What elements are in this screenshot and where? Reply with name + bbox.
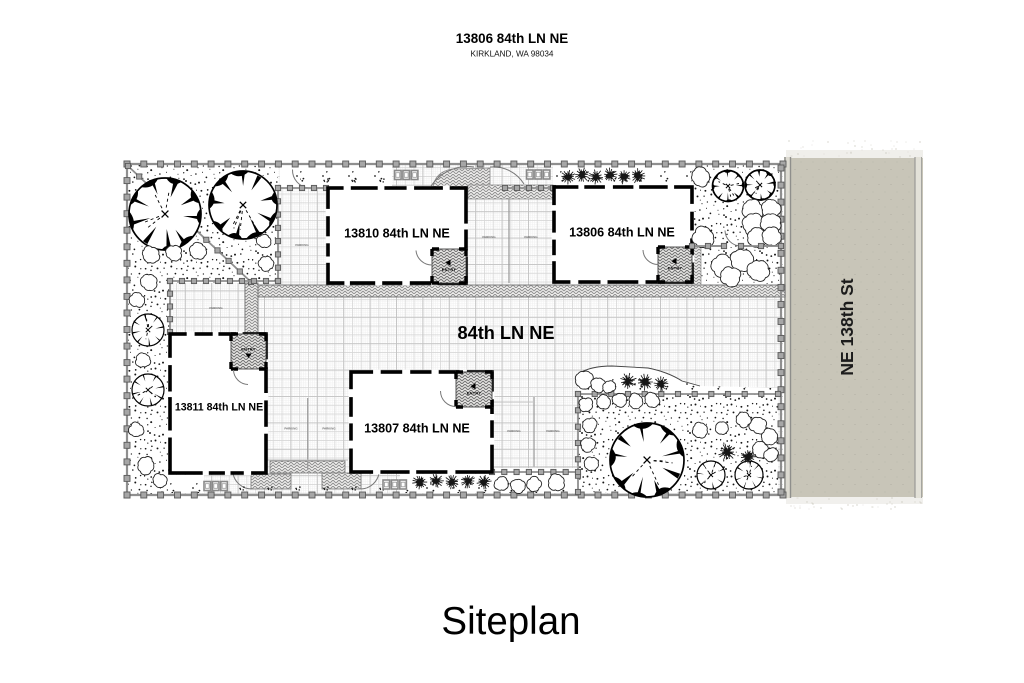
svg-text:PARKING: PARKING xyxy=(284,427,298,431)
svg-text:PARKING: PARKING xyxy=(524,235,538,239)
svg-text:KIRKLAND, WA 98034: KIRKLAND, WA 98034 xyxy=(471,50,554,59)
svg-text:PARKING: PARKING xyxy=(507,429,521,433)
svg-text:13806 84th LN NE: 13806 84th LN NE xyxy=(456,31,568,46)
svg-text:PARKING: PARKING xyxy=(546,429,560,433)
svg-text:13810 84th LN NE: 13810 84th LN NE xyxy=(344,227,450,241)
svg-text:NE 138th St: NE 138th St xyxy=(837,278,857,375)
svg-text:Siteplan: Siteplan xyxy=(441,600,580,643)
svg-text:PARKING: PARKING xyxy=(209,306,223,310)
svg-text:ENTRY: ENTRY xyxy=(467,391,482,396)
svg-text:84th LN NE: 84th LN NE xyxy=(457,323,554,343)
svg-text:ENTRY: ENTRY xyxy=(442,267,457,272)
svg-text:PARKING: PARKING xyxy=(322,427,336,431)
svg-text:13807 84th LN NE: 13807 84th LN NE xyxy=(364,422,470,436)
svg-text:ENTRY: ENTRY xyxy=(668,266,683,271)
svg-text:PARKING: PARKING xyxy=(482,235,496,239)
svg-text:13806 84th LN NE: 13806 84th LN NE xyxy=(569,226,675,240)
svg-text:PARKING: PARKING xyxy=(295,243,309,247)
svg-text:ENTRY: ENTRY xyxy=(241,347,256,352)
svg-text:13811 84th LN NE: 13811 84th LN NE xyxy=(175,402,263,414)
